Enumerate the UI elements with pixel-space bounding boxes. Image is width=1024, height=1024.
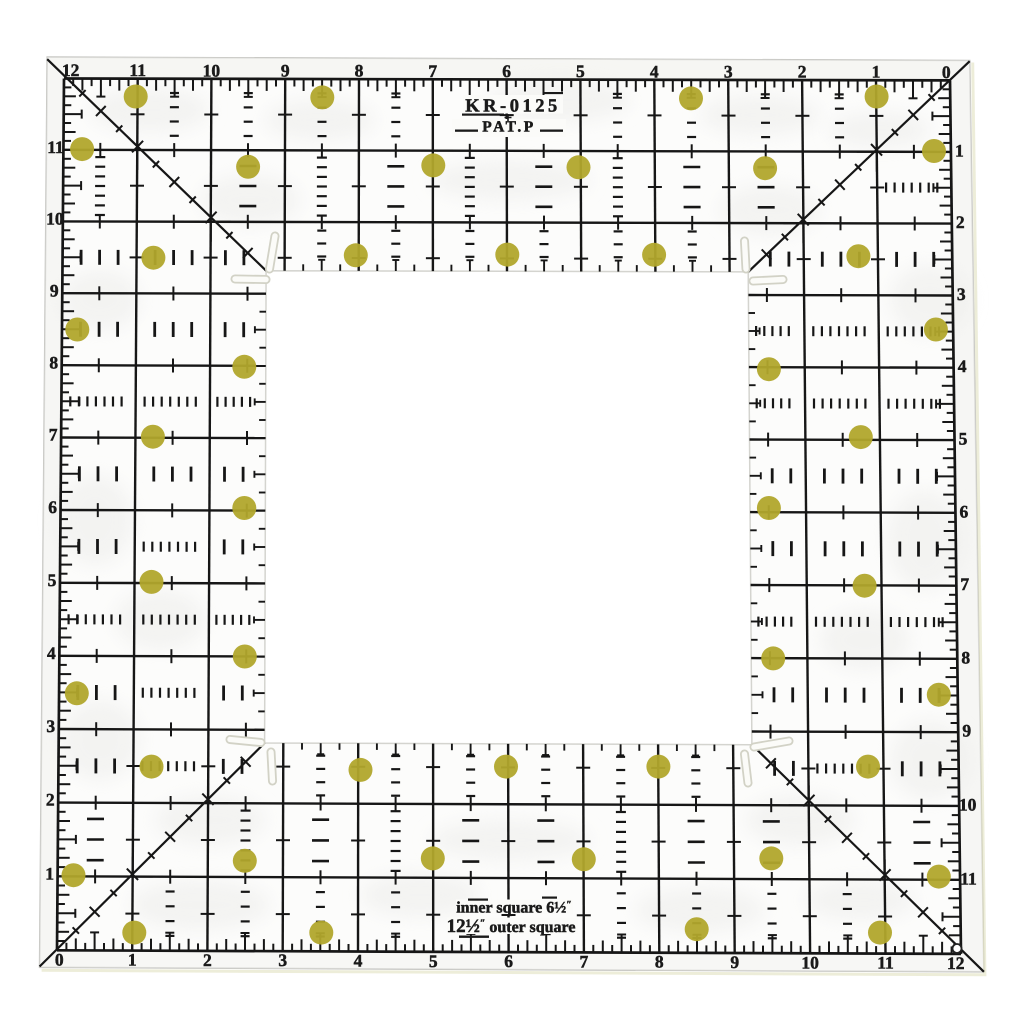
- svg-text:8: 8: [655, 952, 664, 972]
- svg-text:5: 5: [48, 570, 57, 590]
- svg-text:9: 9: [50, 280, 59, 300]
- svg-text:10: 10: [959, 794, 977, 814]
- svg-text:11: 11: [877, 953, 894, 973]
- svg-text:1: 1: [872, 62, 881, 82]
- svg-text:12½″ outer square: 12½″ outer square: [447, 916, 576, 937]
- svg-text:9: 9: [730, 952, 739, 972]
- svg-text:3: 3: [46, 716, 55, 736]
- svg-text:4: 4: [47, 643, 56, 663]
- svg-text:7: 7: [580, 951, 589, 971]
- svg-text:5: 5: [576, 61, 585, 81]
- svg-text:12: 12: [947, 953, 965, 973]
- svg-text:1: 1: [955, 140, 964, 160]
- svg-text:6: 6: [504, 951, 513, 971]
- svg-text:3: 3: [724, 61, 733, 81]
- svg-text:5: 5: [959, 429, 968, 449]
- svg-text:9: 9: [962, 721, 971, 741]
- svg-text:4: 4: [650, 61, 659, 81]
- svg-text:7: 7: [960, 574, 969, 594]
- svg-text:inner square 6½″: inner square 6½″: [456, 900, 572, 917]
- svg-text:6: 6: [960, 501, 969, 521]
- svg-text:8: 8: [355, 61, 364, 81]
- svg-text:2: 2: [798, 62, 807, 82]
- svg-text:10: 10: [801, 952, 819, 972]
- svg-text:4: 4: [354, 951, 363, 971]
- svg-text:6: 6: [502, 61, 511, 81]
- svg-text:7: 7: [428, 61, 437, 81]
- svg-text:6: 6: [48, 497, 57, 517]
- svg-text:9: 9: [281, 61, 290, 81]
- svg-text:11: 11: [47, 137, 64, 157]
- svg-text:8: 8: [961, 647, 970, 667]
- svg-text:PAT.P: PAT.P: [482, 119, 535, 136]
- svg-text:1: 1: [128, 950, 137, 970]
- svg-text:11: 11: [960, 868, 977, 888]
- svg-text:4: 4: [958, 356, 967, 376]
- svg-text:3: 3: [278, 950, 287, 970]
- svg-text:2: 2: [956, 212, 965, 232]
- svg-text:12: 12: [62, 60, 80, 80]
- svg-text:2: 2: [203, 950, 212, 970]
- svg-text:10: 10: [46, 209, 64, 229]
- svg-text:5: 5: [429, 951, 438, 971]
- svg-text:1: 1: [45, 863, 54, 883]
- svg-text:11: 11: [129, 60, 146, 80]
- svg-text:0: 0: [942, 62, 951, 82]
- svg-text:3: 3: [957, 284, 966, 304]
- svg-text:10: 10: [203, 60, 221, 80]
- svg-text:7: 7: [49, 425, 58, 445]
- svg-text:2: 2: [46, 790, 55, 810]
- svg-text:0: 0: [55, 949, 64, 969]
- svg-text:8: 8: [49, 352, 58, 372]
